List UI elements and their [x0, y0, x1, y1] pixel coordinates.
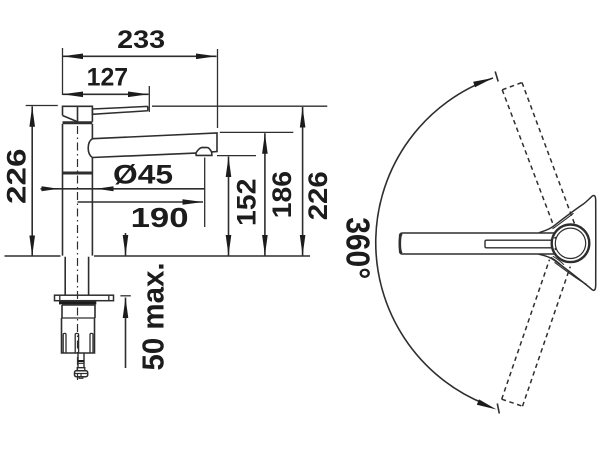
svg-text:190: 190 [131, 202, 189, 233]
svg-text:50 max.: 50 max. [137, 263, 171, 371]
svg-text:186: 186 [267, 171, 297, 218]
svg-text:233: 233 [117, 26, 165, 54]
svg-text:Ø45: Ø45 [113, 159, 173, 189]
svg-text:127: 127 [87, 64, 129, 92]
svg-text:152: 152 [231, 179, 261, 227]
svg-text:226: 226 [2, 148, 32, 204]
svg-text:360°: 360° [340, 217, 377, 279]
svg-text:226: 226 [303, 171, 333, 220]
